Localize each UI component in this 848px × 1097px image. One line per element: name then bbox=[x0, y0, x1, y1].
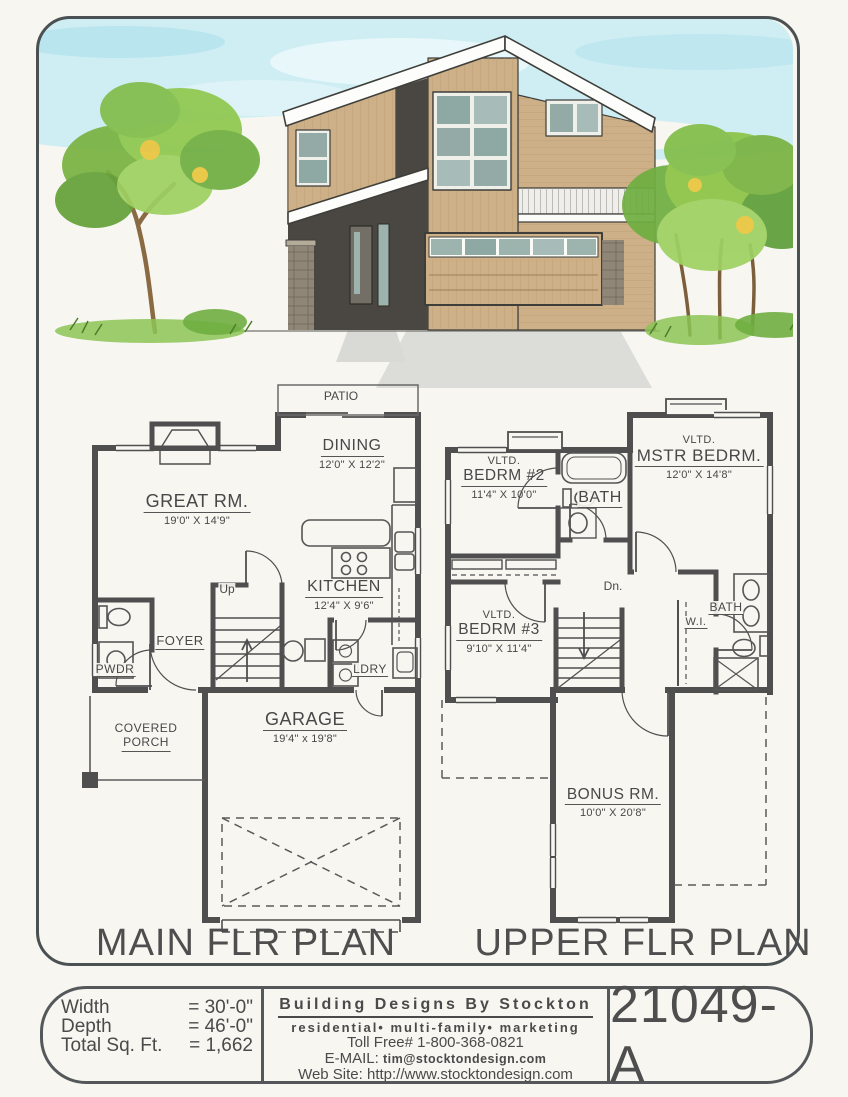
label-ldry: LDRY bbox=[352, 663, 388, 677]
room-label-mstr-bedrm: VLTD. MSTR BEDRM. 12'0" X 14'8" bbox=[635, 434, 764, 482]
vltd-text: VLTD. bbox=[483, 609, 516, 621]
room-name: BEDRM #2 bbox=[461, 467, 547, 486]
label-bath-lower: BATH bbox=[708, 601, 743, 615]
pwdr-text: PWDR bbox=[95, 663, 136, 677]
room-dims: 19'0" X 14'9" bbox=[164, 515, 230, 527]
room-label-bedrm2: VLTD. BEDRM #2 11'4" X 10'0" bbox=[461, 455, 547, 501]
bath-text: BATH bbox=[577, 489, 622, 508]
plan-stats: Width = 30'-0" Depth = 46'-0" Total Sq. … bbox=[43, 989, 264, 1081]
email-value: tim@stocktondesign.com bbox=[383, 1052, 546, 1066]
room-name: MSTR BEDRM. bbox=[635, 446, 764, 467]
porch-text: PORCH bbox=[121, 736, 171, 751]
stat-label: Total Sq. Ft. bbox=[61, 1036, 162, 1055]
room-dims: 10'0" X 20'8" bbox=[580, 807, 646, 819]
label-up: Up bbox=[218, 583, 235, 596]
stairs-main bbox=[215, 618, 280, 682]
stat-value: = 30'-0" bbox=[188, 998, 253, 1017]
stat-label: Depth bbox=[61, 1017, 112, 1036]
foyer-text: FOYER bbox=[155, 634, 204, 650]
room-label-garage: GARAGE 19'4" x 19'8" bbox=[263, 709, 347, 745]
dn-text: Dn. bbox=[603, 580, 624, 593]
room-dims: 12'0" X 12'2" bbox=[319, 459, 385, 471]
room-name: GARAGE bbox=[263, 709, 347, 731]
garage-door bbox=[425, 233, 624, 305]
stat-width: Width = 30'-0" bbox=[61, 998, 253, 1017]
closet-upper bbox=[452, 560, 556, 575]
vltd-text: VLTD. bbox=[488, 455, 521, 467]
vltd-text: VLTD. bbox=[683, 434, 716, 446]
room-dims: 9'10" X 11'4" bbox=[466, 643, 531, 655]
up-text: Up bbox=[218, 583, 235, 596]
room-label-bedrm3: VLTD. BEDRM #3 9'10" X 11'4" bbox=[456, 609, 542, 655]
divider-rule bbox=[278, 1016, 593, 1018]
stat-value: = 1,662 bbox=[189, 1036, 253, 1055]
room-dims: 11'4" X 10'0" bbox=[471, 489, 536, 501]
company-info: Building Designs By Stockton residential… bbox=[264, 989, 610, 1081]
room-label-great-rm: GREAT RM. 19'0" X 14'9" bbox=[144, 491, 251, 527]
label-bath-upper: BATH bbox=[577, 489, 622, 508]
room-label-kitchen: KITCHEN 12'4" X 9'6" bbox=[305, 578, 383, 612]
plan-sheet: PATIO DINING 12'0" X 12'2" GREAT RM. 19'… bbox=[0, 0, 848, 1097]
label-covered-porch: COVERED PORCH bbox=[113, 722, 180, 752]
stairs-upper bbox=[558, 612, 620, 688]
main-plan-title: MAIN FLR PLAN bbox=[96, 924, 396, 962]
upper-plan-title: UPPER FLR PLAN bbox=[474, 924, 811, 962]
room-dims: 19'4" x 19'8" bbox=[273, 733, 337, 745]
garage-attic-dashed bbox=[222, 818, 400, 906]
walk-in-closet bbox=[678, 600, 686, 686]
stat-depth: Depth = 46'-0" bbox=[61, 1017, 253, 1036]
covered-text: COVERED bbox=[113, 722, 180, 736]
toll-free: Toll Free# 1-800-368-0821 bbox=[264, 1035, 607, 1051]
company-name: Building Designs By Stockton bbox=[264, 996, 607, 1014]
label-foyer: FOYER bbox=[155, 634, 204, 650]
ldry-text: LDRY bbox=[352, 663, 388, 677]
room-name: BEDRM #3 bbox=[456, 621, 542, 640]
email-label: E-MAIL: bbox=[325, 1050, 379, 1067]
patio-text: PATIO bbox=[324, 390, 358, 403]
company-tagline: residential• multi-family• marketing bbox=[264, 1020, 607, 1035]
stat-label: Width bbox=[61, 998, 110, 1017]
wi-text: W.I. bbox=[685, 616, 708, 629]
label-dn: Dn. bbox=[603, 580, 624, 593]
email-line: E-MAIL: tim@stocktondesign.com bbox=[264, 1051, 607, 1067]
title-block: Width = 30'-0" Depth = 46'-0" Total Sq. … bbox=[40, 986, 813, 1084]
room-label-bonus: BONUS RM. 10'0" X 20'8" bbox=[565, 786, 661, 820]
fireplace bbox=[152, 424, 218, 464]
room-name: GREAT RM. bbox=[144, 491, 251, 513]
room-name: KITCHEN bbox=[305, 578, 383, 598]
label-patio: PATIO bbox=[324, 390, 358, 403]
label-wi: W.I. bbox=[685, 616, 708, 629]
label-pwdr: PWDR bbox=[95, 663, 136, 677]
room-label-dining: DINING 12'0" X 12'2" bbox=[319, 437, 385, 471]
stat-sqft: Total Sq. Ft. = 1,662 bbox=[61, 1036, 253, 1055]
web-line: Web Site: http://www.stocktondesign.com bbox=[264, 1067, 607, 1083]
room-name: BONUS RM. bbox=[565, 786, 661, 805]
plan-number: 21049-A bbox=[610, 989, 810, 1081]
room-dims: 12'4" X 9'6" bbox=[314, 600, 374, 612]
web-value: http://www.stocktondesign.com bbox=[367, 1066, 573, 1083]
web-label: Web Site: bbox=[298, 1066, 363, 1083]
room-dims: 12'0" X 14'8" bbox=[666, 469, 732, 481]
bath-text: BATH bbox=[708, 601, 743, 615]
stat-value: = 46'-0" bbox=[188, 1017, 253, 1036]
room-name: DINING bbox=[320, 437, 383, 457]
